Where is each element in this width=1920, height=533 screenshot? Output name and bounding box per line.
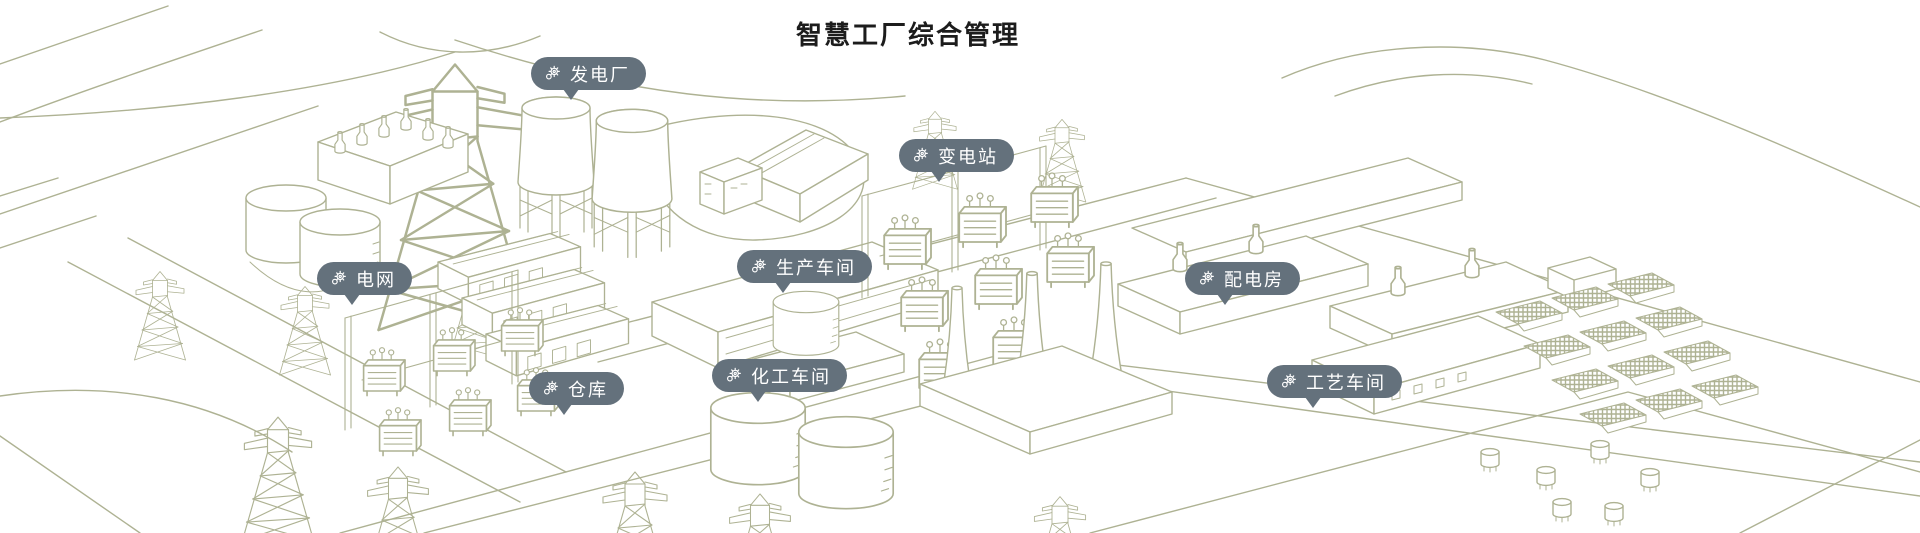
gear-icon [1198,270,1215,287]
marker-label: 发电厂 [570,61,630,87]
marker-label: 仓库 [568,376,608,402]
smart-factory-dashboard: 智慧工厂综合管理 发电厂变电站电网生产车间配电房仓库化工车间工艺车间 [0,0,1920,533]
marker-label: 电网 [356,266,396,292]
marker-label: 变电站 [938,143,998,169]
marker-tail [344,294,360,305]
marker-tail [1305,397,1321,408]
map-marker-chemical-workshop[interactable]: 化工车间 [712,359,847,392]
marker-tail [563,89,579,100]
gear-icon [542,380,559,397]
marker-label: 化工车间 [751,363,831,389]
gear-icon [1280,373,1297,390]
gear-icon [544,65,561,82]
map-marker-warehouse[interactable]: 仓库 [529,372,624,405]
gear-icon [912,147,929,164]
marker-label: 配电房 [1224,266,1284,292]
gear-icon [750,258,767,275]
map-marker-power-plant[interactable]: 发电厂 [531,57,646,90]
marker-tail [1217,294,1233,305]
gear-icon [725,367,742,384]
marker-label: 生产车间 [776,254,856,280]
map-marker-power-grid[interactable]: 电网 [317,262,412,295]
marker-label: 工艺车间 [1306,369,1386,395]
map-marker-process-workshop[interactable]: 工艺车间 [1267,365,1402,398]
map-marker-production-workshop[interactable]: 生产车间 [737,250,872,283]
marker-tail [931,171,947,182]
marker-tail [775,282,791,293]
map-marker-substation[interactable]: 变电站 [899,139,1014,172]
marker-tail [750,391,766,402]
map-markers-layer: 发电厂变电站电网生产车间配电房仓库化工车间工艺车间 [0,0,1920,533]
gear-icon [330,270,347,287]
map-marker-distribution-room[interactable]: 配电房 [1185,262,1300,295]
marker-tail [556,404,572,415]
